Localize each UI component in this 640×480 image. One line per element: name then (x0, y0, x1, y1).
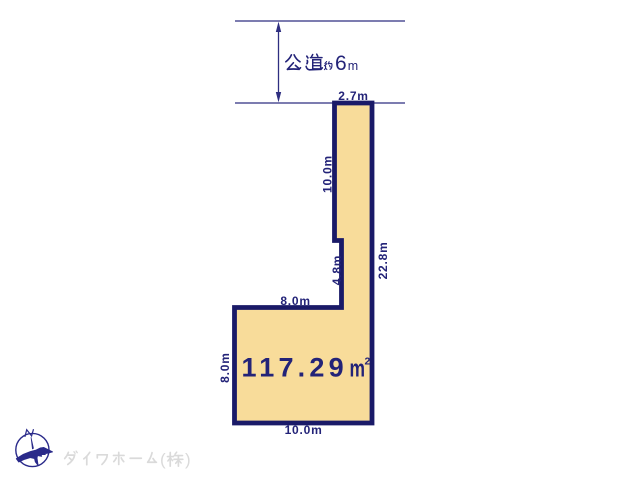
svg-text:m: m (348, 59, 358, 73)
svg-text:(: ( (160, 450, 166, 469)
svg-text:2: 2 (365, 356, 371, 368)
svg-text:10.0m: 10.0m (285, 423, 323, 437)
svg-text:6: 6 (335, 52, 347, 75)
svg-text:8.0m: 8.0m (280, 294, 311, 308)
svg-text:22.8m: 22.8m (376, 241, 390, 279)
svg-text:4.8m: 4.8m (330, 255, 344, 286)
svg-text:117.29: 117.29 (242, 353, 348, 383)
svg-text:): ) (185, 450, 191, 469)
svg-text:2.7m: 2.7m (338, 89, 369, 103)
svg-text:10.0m: 10.0m (320, 155, 334, 193)
svg-text:8.0m: 8.0m (218, 352, 232, 383)
svg-text:m: m (350, 356, 366, 383)
